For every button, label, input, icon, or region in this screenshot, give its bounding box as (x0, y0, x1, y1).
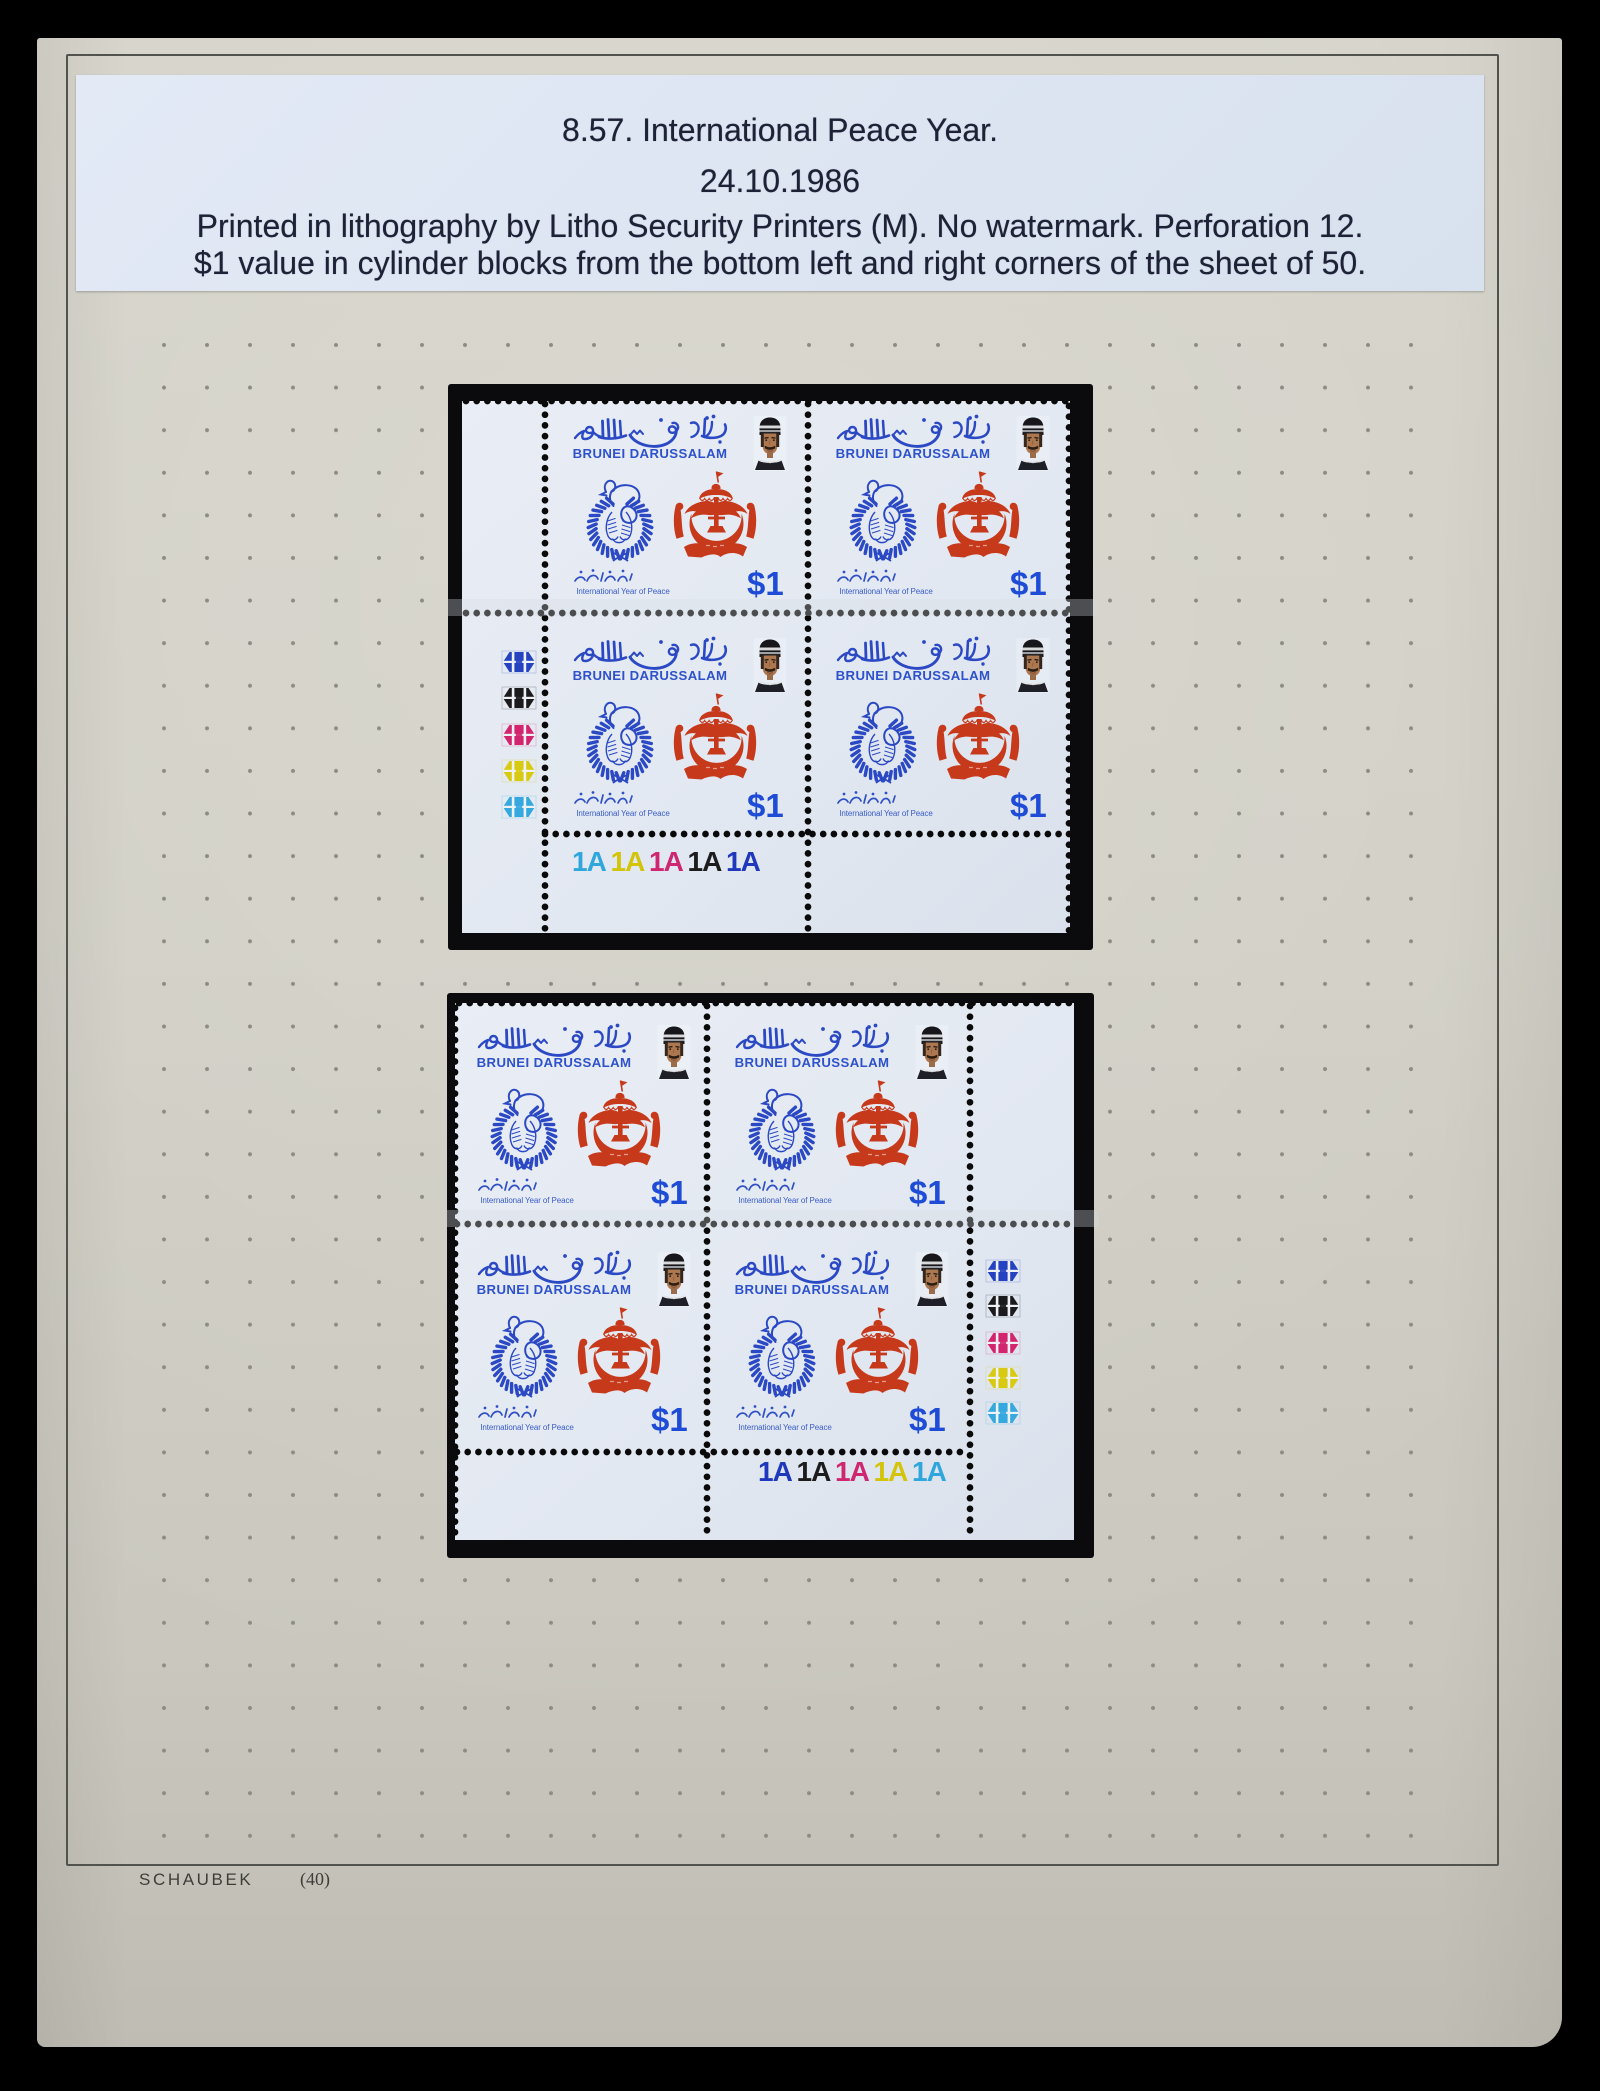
svg-text:1A: 1A (611, 846, 646, 877)
svg-text:1A: 1A (797, 1456, 832, 1487)
svg-text:1A: 1A (835, 1456, 870, 1487)
svg-text:1A: 1A (572, 846, 607, 877)
svg-text:1A: 1A (758, 1456, 793, 1487)
svg-text:1A: 1A (649, 846, 684, 877)
svg-text:1A: 1A (912, 1456, 947, 1487)
svg-text:1A: 1A (874, 1456, 909, 1487)
svg-text:1A: 1A (688, 846, 723, 877)
svg-text:1A: 1A (726, 846, 761, 877)
